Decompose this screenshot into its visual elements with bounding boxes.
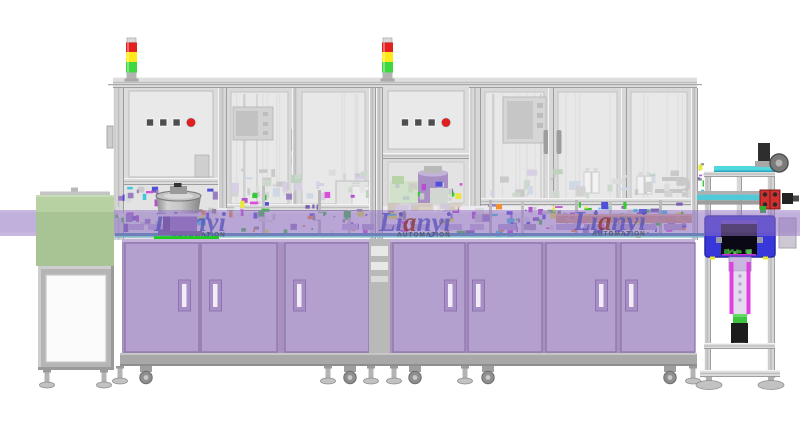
svg-text:AUTOMATION: AUTOMATION	[397, 232, 451, 239]
svg-text:AUTOMATION: AUTOMATION	[592, 231, 646, 238]
